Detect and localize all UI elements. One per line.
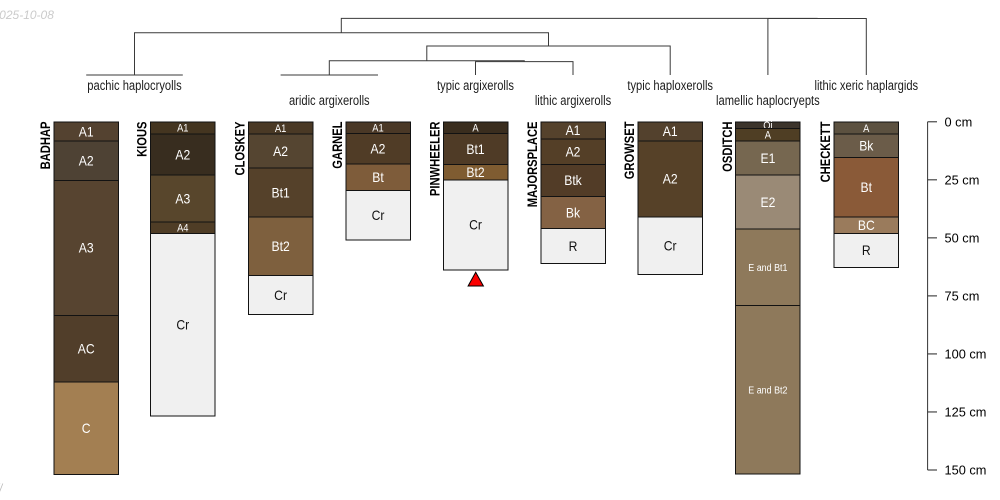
svg-text:Btk: Btk bbox=[564, 173, 582, 189]
svg-text:A1: A1 bbox=[177, 123, 189, 135]
svg-text:typic argixerolls: typic argixerolls bbox=[437, 78, 514, 93]
svg-text:BC: BC bbox=[858, 217, 875, 233]
svg-text:E and Bt2: E and Bt2 bbox=[748, 385, 787, 397]
svg-text:MAJORSPLACE: MAJORSPLACE bbox=[525, 121, 540, 207]
svg-text:A4: A4 bbox=[177, 223, 189, 235]
svg-text:A3: A3 bbox=[175, 191, 190, 207]
svg-text:Bk: Bk bbox=[566, 205, 581, 221]
svg-text:A2: A2 bbox=[663, 171, 678, 187]
svg-text:pachic haplocryolls: pachic haplocryolls bbox=[87, 78, 181, 93]
svg-text:CHECKETT: CHECKETT bbox=[818, 121, 833, 182]
svg-text:lithic argixerolls: lithic argixerolls bbox=[535, 93, 611, 108]
svg-text:E2: E2 bbox=[760, 194, 775, 210]
svg-text:PINWHEELER: PINWHEELER bbox=[427, 122, 442, 197]
svg-text:50 cm: 50 cm bbox=[945, 230, 980, 245]
svg-text:A3: A3 bbox=[79, 240, 94, 256]
svg-text:A2: A2 bbox=[79, 153, 94, 169]
svg-text:GARNEL: GARNEL bbox=[330, 121, 345, 168]
svg-text:AC: AC bbox=[78, 341, 95, 357]
svg-text:A1: A1 bbox=[275, 123, 287, 135]
svg-text:typic haploxerolls: typic haploxerolls bbox=[627, 78, 713, 93]
svg-text:A1: A1 bbox=[663, 124, 678, 140]
svg-text:aridic argixerolls: aridic argixerolls bbox=[289, 93, 370, 108]
svg-text:150 cm: 150 cm bbox=[945, 463, 987, 478]
svg-text:Bt1: Bt1 bbox=[466, 141, 484, 157]
svg-text:Cr: Cr bbox=[664, 238, 677, 254]
svg-text:0 cm: 0 cm bbox=[945, 114, 973, 129]
svg-text:Bt2: Bt2 bbox=[271, 238, 289, 254]
svg-text:Bt1: Bt1 bbox=[271, 185, 289, 201]
svg-text:A2: A2 bbox=[566, 144, 581, 160]
svg-text:125 cm: 125 cm bbox=[945, 405, 987, 420]
svg-text:lithic xeric haplargids: lithic xeric haplargids bbox=[814, 78, 918, 93]
svg-text:A1: A1 bbox=[79, 124, 94, 140]
svg-text:A: A bbox=[472, 123, 478, 135]
svg-text:A: A bbox=[765, 130, 771, 142]
svg-text:OSDITCH: OSDITCH bbox=[720, 122, 735, 172]
svg-text:Cr: Cr bbox=[469, 217, 482, 233]
svg-text:BADHAP: BADHAP bbox=[38, 121, 53, 169]
svg-text:2025-10-08: 2025-10-08 bbox=[0, 8, 54, 22]
svg-text:R: R bbox=[569, 238, 578, 254]
svg-text:A2: A2 bbox=[175, 147, 190, 163]
svg-text:Bt2: Bt2 bbox=[466, 164, 484, 180]
svg-text:Cr: Cr bbox=[274, 287, 287, 303]
svg-text:A2: A2 bbox=[371, 141, 386, 157]
svg-text:E and Bt1: E and Bt1 bbox=[748, 262, 787, 274]
svg-text:Cr: Cr bbox=[176, 317, 189, 333]
svg-text:75 cm: 75 cm bbox=[945, 289, 980, 304]
svg-text:lamellic haplocryepts: lamellic haplocryepts bbox=[716, 93, 820, 108]
svg-text:100 cm: 100 cm bbox=[945, 347, 987, 362]
svg-text:A: A bbox=[863, 123, 869, 135]
svg-text:GROWSET: GROWSET bbox=[622, 121, 637, 179]
svg-text:A2: A2 bbox=[273, 143, 288, 159]
svg-text:Bk: Bk bbox=[859, 138, 874, 154]
svg-text:A1: A1 bbox=[566, 123, 581, 139]
svg-text:CLOSKEY: CLOSKEY bbox=[232, 121, 247, 176]
svg-text:Bt: Bt bbox=[861, 179, 873, 195]
svg-text:R: R bbox=[862, 243, 871, 259]
svg-text:Cr: Cr bbox=[372, 207, 385, 223]
svg-text:E1: E1 bbox=[760, 150, 775, 166]
svg-text:Bt: Bt bbox=[372, 169, 384, 185]
svg-text:25 cm: 25 cm bbox=[945, 172, 980, 187]
svg-text:C: C bbox=[82, 420, 91, 436]
svg-text:KIOUS: KIOUS bbox=[135, 121, 150, 156]
svg-text:A1: A1 bbox=[372, 123, 384, 135]
